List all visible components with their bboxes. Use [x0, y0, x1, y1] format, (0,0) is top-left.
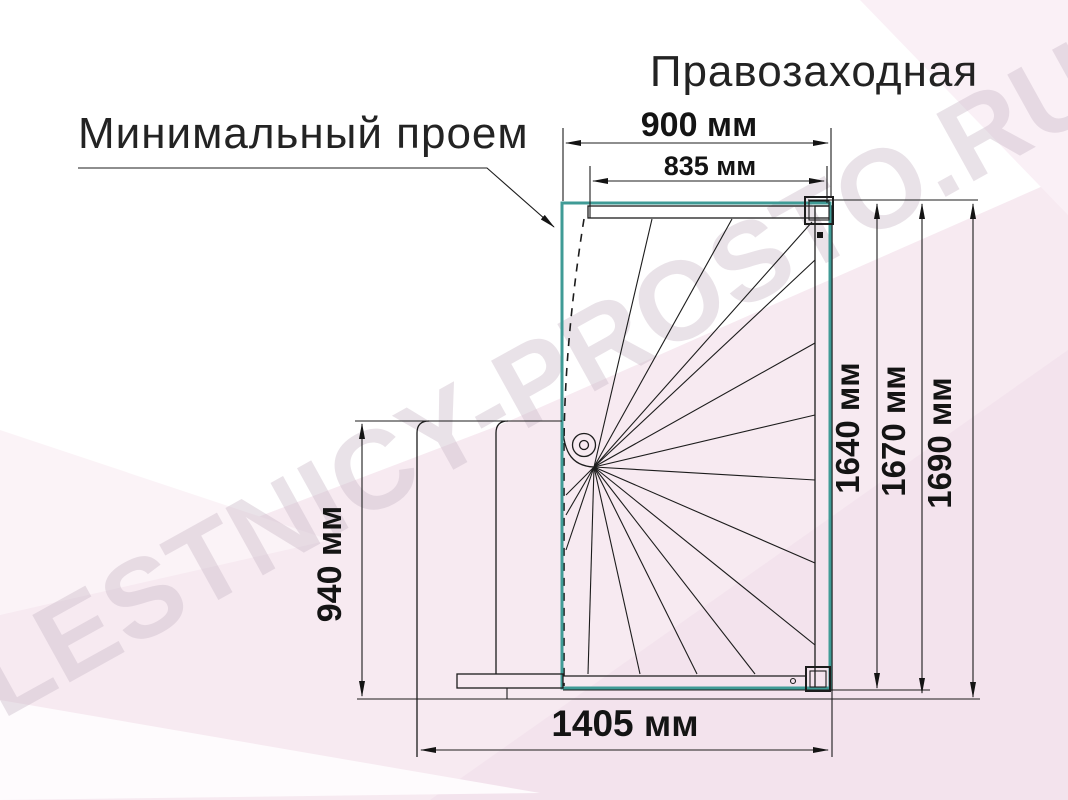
dim-label-835: 835 мм [664, 151, 757, 181]
dim-label-1690: 1690 мм [921, 377, 958, 508]
bottom-plate [563, 676, 806, 688]
dim-label-1670: 1670 мм [875, 365, 912, 496]
stair-structure [417, 197, 833, 757]
callout-label: Минимальный проем [78, 109, 529, 158]
baluster-dot [817, 232, 823, 238]
stair-treads [566, 219, 815, 674]
entry-outline-inner [496, 421, 508, 674]
bolt-dot [791, 679, 796, 684]
stair-plan-svg: Правозаходная Минимальный проем 900 мм 8… [0, 0, 1068, 800]
top-stringer [588, 206, 832, 218]
dim-label-900: 900 мм [641, 106, 757, 144]
dim-label-1405: 1405 мм [551, 703, 698, 744]
staircase-drawing-page: LESTNICY-PROSTO.RU [0, 0, 1068, 800]
center-post [562, 414, 596, 467]
entry-outline-outer [417, 421, 429, 757]
entry-step [457, 674, 563, 688]
callout-leader [78, 168, 554, 227]
dim-label-1640: 1640 мм [829, 362, 866, 493]
drawing-title: Правозаходная [650, 47, 978, 96]
minimum-opening-outline [562, 203, 830, 688]
dim-label-940: 940 мм [311, 506, 349, 622]
tread-arc [562, 414, 594, 467]
tread-edge-dashed [564, 219, 584, 686]
